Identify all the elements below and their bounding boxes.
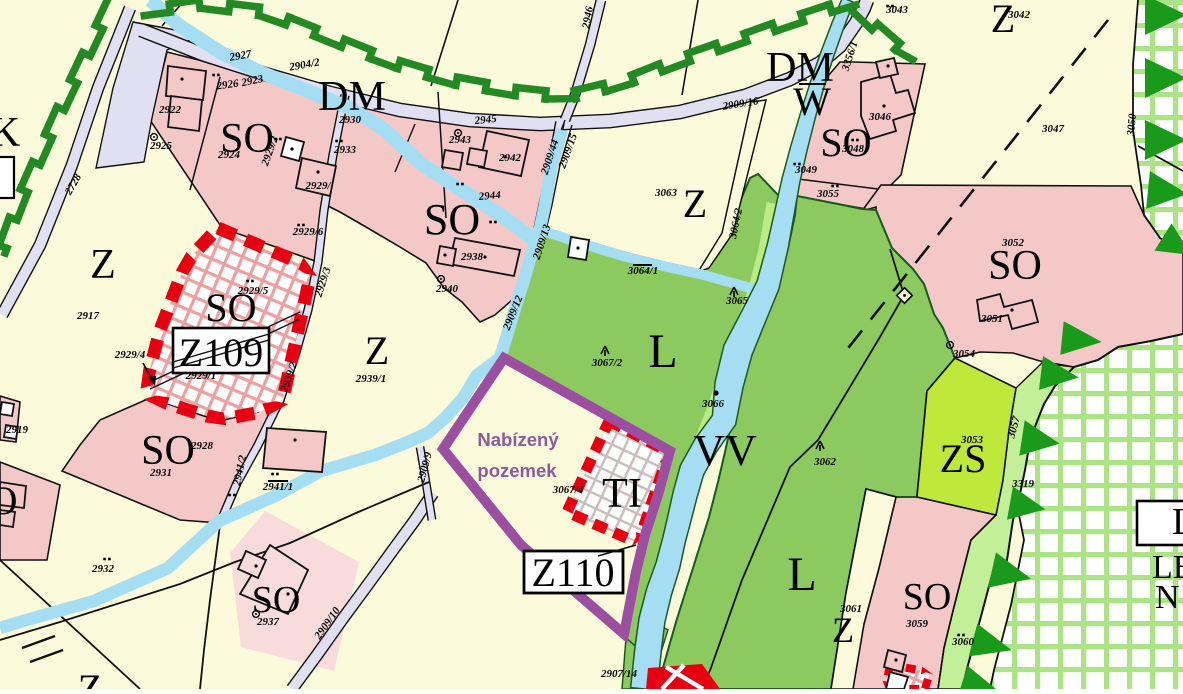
svg-text:Z: Z	[683, 181, 707, 226]
svg-text:3059: 3059	[905, 618, 929, 630]
svg-text:Z: Z	[78, 666, 102, 689]
svg-text:2930: 2930	[338, 114, 362, 126]
svg-text:Z: Z	[90, 242, 116, 288]
svg-text:SO: SO	[0, 478, 18, 523]
svg-text:3046: 3046	[868, 111, 892, 123]
svg-text:3051: 3051	[980, 313, 1003, 325]
svg-text:3049: 3049	[794, 164, 818, 176]
svg-text:2940: 2940	[435, 283, 459, 295]
svg-text:2937: 2937	[256, 616, 280, 628]
svg-text:2922: 2922	[158, 104, 182, 116]
svg-text:L: L	[648, 325, 677, 378]
svg-text:Z: Z	[365, 328, 389, 373]
svg-text:2924: 2924	[217, 149, 241, 161]
svg-text:3063: 3063	[654, 187, 678, 199]
svg-text:2928: 2928	[190, 440, 214, 452]
svg-text:3067/4: 3067/4	[552, 484, 584, 496]
svg-text:3319: 3319	[1011, 478, 1035, 490]
svg-text:3054: 3054	[952, 348, 976, 360]
svg-text:2925: 2925	[149, 140, 173, 152]
svg-text:2929/: 2929/	[304, 180, 331, 192]
svg-text:W: W	[793, 79, 831, 124]
svg-text:Nabízený: Nabízený	[477, 429, 559, 450]
svg-text:2939/1: 2939/1	[355, 373, 387, 385]
svg-text:Z110: Z110	[532, 550, 615, 595]
svg-text:3064/1: 3064/1	[627, 265, 659, 277]
svg-text:SO: SO	[988, 243, 1042, 289]
svg-text:Z109: Z109	[179, 330, 263, 375]
svg-text:2945: 2945	[473, 113, 498, 127]
svg-text:pozemek: pozemek	[477, 460, 557, 481]
svg-text:2907/14: 2907/14	[600, 668, 638, 680]
svg-text:2933: 2933	[333, 144, 357, 156]
svg-text:3048: 3048	[841, 143, 865, 155]
svg-text:3042: 3042	[1007, 9, 1031, 21]
svg-text:TI: TI	[602, 471, 642, 517]
svg-text:L: L	[787, 548, 816, 601]
svg-text:2919: 2919	[5, 424, 29, 436]
svg-text:2942: 2942	[498, 152, 522, 164]
svg-text:3047: 3047	[1041, 123, 1065, 135]
svg-text:3050: 3050	[1125, 113, 1139, 137]
svg-text:VV: VV	[693, 426, 757, 475]
svg-text:3055: 3055	[816, 188, 840, 200]
svg-text:Z: Z	[832, 610, 854, 650]
svg-text:3066: 3066	[701, 398, 725, 410]
svg-text:SO: SO	[424, 195, 480, 244]
svg-text:2941/1: 2941/1	[262, 481, 294, 493]
svg-text:3067/2: 3067/2	[591, 357, 623, 369]
svg-text:K: K	[0, 110, 20, 156]
svg-text:N: N	[1155, 579, 1180, 616]
svg-text:2944: 2944	[477, 189, 501, 203]
svg-text:3062: 3062	[813, 456, 837, 468]
svg-text:SO: SO	[903, 576, 952, 618]
svg-text:3053: 3053	[960, 434, 984, 446]
svg-text:2932: 2932	[91, 563, 115, 575]
svg-text:3065: 3065	[725, 295, 749, 307]
svg-text:2929/5: 2929/5	[237, 285, 269, 297]
svg-text:3061: 3061	[839, 603, 862, 615]
svg-text:3052: 3052	[1001, 237, 1025, 249]
svg-text:3060: 3060	[951, 636, 975, 648]
svg-text:2929/4: 2929/4	[114, 349, 146, 361]
svg-text:2931: 2931	[149, 467, 172, 479]
svg-text:2917: 2917	[76, 310, 100, 322]
svg-text:2929/1: 2929/1	[185, 370, 217, 382]
svg-text:LB: LB	[1172, 501, 1183, 543]
svg-text:2938: 2938	[460, 251, 484, 263]
svg-text:2929/6: 2929/6	[292, 226, 324, 238]
